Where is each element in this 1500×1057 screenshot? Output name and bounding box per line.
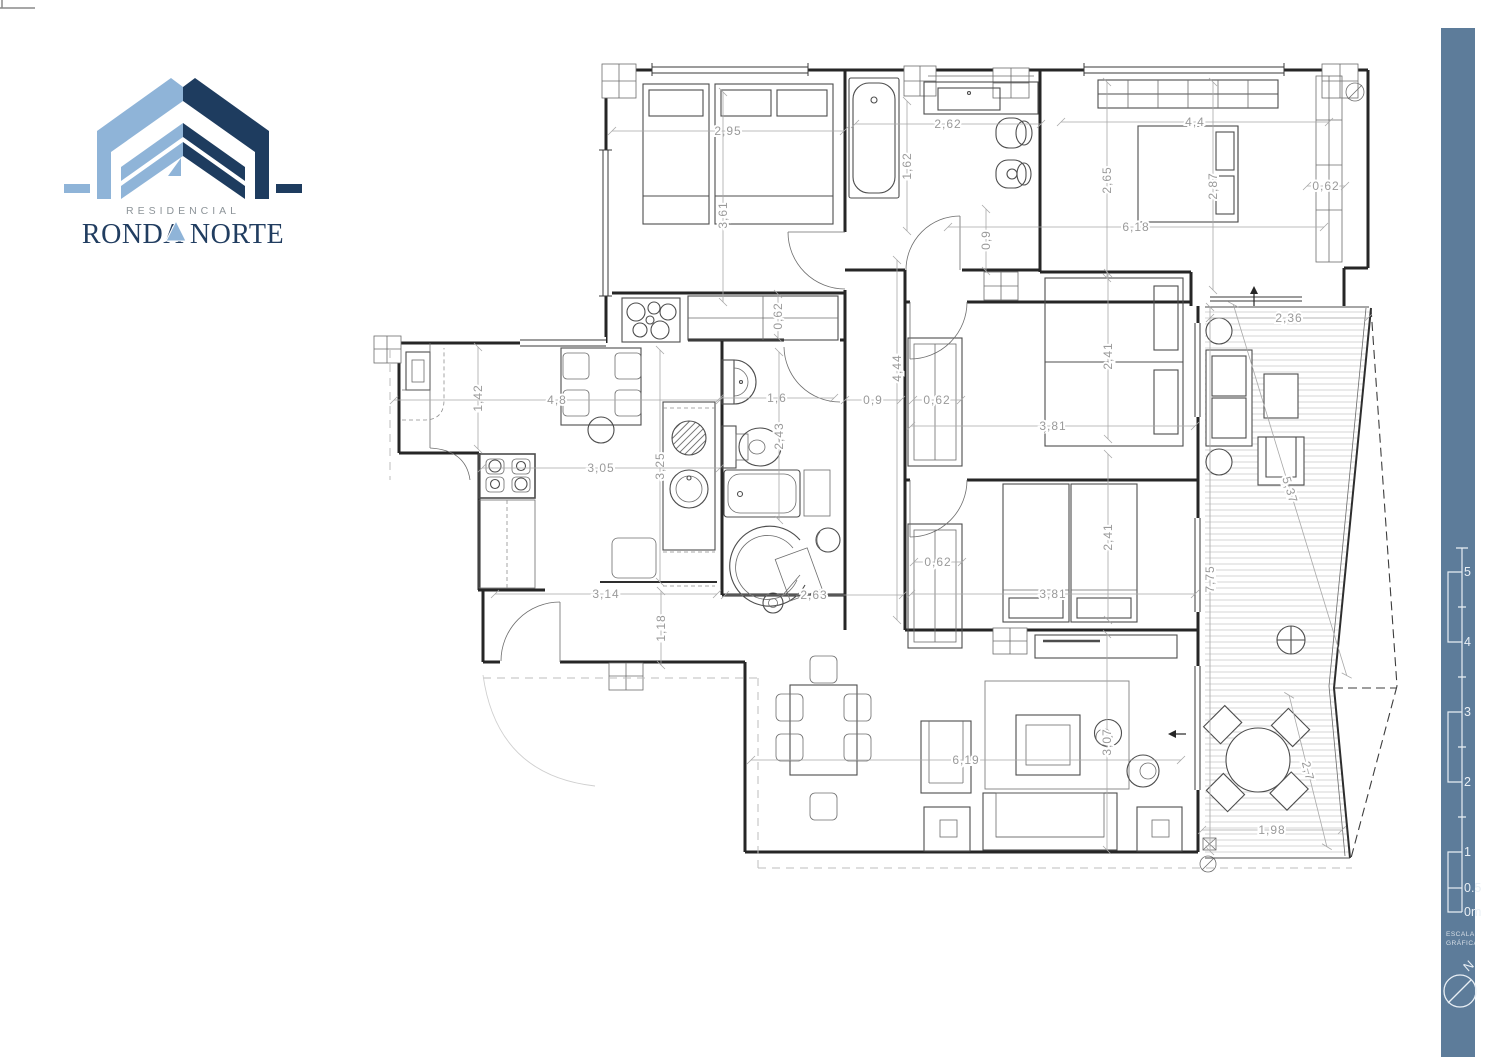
dimension: 0,62 — [910, 555, 966, 569]
logo-building-icon — [64, 78, 302, 199]
svg-text:2,62: 2,62 — [934, 117, 961, 131]
dimension: 0,62 — [771, 290, 785, 342]
dimension: 0,9 — [979, 205, 993, 275]
svg-text:0,62: 0,62 — [1312, 179, 1339, 193]
svg-text:4,8: 4,8 — [547, 393, 567, 407]
svg-text:1,18: 1,18 — [654, 614, 668, 641]
svg-text:2,87: 2,87 — [1206, 172, 1220, 199]
svg-text:2,41: 2,41 — [1101, 523, 1115, 550]
svg-text:6,19: 6,19 — [952, 753, 979, 767]
svg-text:3,81: 3,81 — [1039, 587, 1066, 601]
svg-text:0,62: 0,62 — [771, 302, 785, 329]
dimension: 1,42 — [471, 343, 485, 453]
svg-text:2,43: 2,43 — [772, 422, 786, 449]
svg-text:4,4: 4,4 — [1185, 115, 1205, 129]
svg-text:1,98: 1,98 — [1258, 823, 1285, 837]
dimension: 4,8 — [390, 393, 724, 407]
door-arrow-icon — [1250, 286, 1258, 294]
dimension: 1,62 — [900, 97, 914, 235]
svg-text:3,05: 3,05 — [587, 461, 614, 475]
dimension: 2,41 — [1101, 269, 1115, 443]
svg-text:3,81: 3,81 — [1039, 419, 1066, 433]
dimension: 6,19 — [747, 753, 1185, 767]
svg-text:6,18: 6,18 — [1122, 220, 1149, 234]
svg-text:2,95: 2,95 — [714, 124, 741, 138]
plan-sheet: RESIDENCIAL RONDA NORTE — [0, 0, 1500, 1057]
sidebar-bar — [1441, 28, 1475, 1057]
svg-text:4,44: 4,44 — [890, 354, 904, 381]
dimension: 4,44 — [890, 256, 904, 624]
scale-label: 0m — [1464, 905, 1481, 919]
dimension: 0,9 — [841, 393, 905, 407]
svg-text:0,62: 0,62 — [923, 393, 950, 407]
dimension: 4,4 — [1057, 115, 1333, 129]
brand-logo: RESIDENCIAL RONDA NORTE — [64, 78, 302, 250]
svg-text:7,75: 7,75 — [1203, 565, 1217, 592]
scale-label: 4 — [1464, 635, 1471, 649]
svg-text:0,9: 0,9 — [863, 393, 883, 407]
svg-text:0,62: 0,62 — [924, 555, 951, 569]
floor-plan-canvas: RESIDENCIAL RONDA NORTE — [0, 0, 1500, 1057]
dimension: 3,81 — [907, 419, 1199, 433]
dimension: 3,07 — [1100, 630, 1114, 854]
dimension: 2,87 — [1206, 78, 1220, 294]
sidebar: 543210.50m ESCALA GRÁFICA N — [1441, 28, 1481, 1057]
dimension: 3,81 — [907, 587, 1199, 601]
dimension: 6,18 — [944, 220, 1328, 234]
dimension: 2,65 — [1100, 78, 1114, 282]
svg-text:3,14: 3,14 — [592, 587, 619, 601]
svg-text:1,6: 1,6 — [767, 391, 787, 405]
dimension: 2,43 — [772, 348, 786, 524]
svg-text:2,65: 2,65 — [1100, 166, 1114, 193]
door-arrow-icon — [1168, 730, 1176, 738]
dimension: 1,18 — [654, 587, 668, 669]
dimension: 2,95 — [608, 124, 848, 138]
scale-label: 5 — [1464, 565, 1471, 579]
dimension: 2,36 — [1206, 311, 1372, 325]
dimension: 3,61 — [716, 88, 730, 306]
svg-text:2,7: 2,7 — [1299, 760, 1317, 782]
svg-text:3,61: 3,61 — [716, 201, 730, 228]
scale-caption-line1: ESCALA — [1446, 931, 1475, 938]
svg-text:2,36: 2,36 — [1275, 311, 1302, 325]
svg-text:2,41: 2,41 — [1101, 342, 1115, 369]
page-corner-marks — [0, 0, 35, 8]
svg-text:3,25: 3,25 — [653, 452, 667, 479]
scale-label: 2 — [1464, 775, 1471, 789]
scale-label: 0.5 — [1464, 881, 1481, 895]
brand-line1: RESIDENCIAL — [126, 205, 240, 217]
scale-label: 3 — [1464, 705, 1471, 719]
svg-text:1,62: 1,62 — [900, 152, 914, 179]
dimension: 3,05 — [478, 461, 724, 475]
svg-text:0,9: 0,9 — [979, 230, 993, 250]
scale-caption-line2: GRÁFICA — [1446, 938, 1479, 947]
scale-label: 1 — [1464, 845, 1471, 859]
svg-text:1,42: 1,42 — [471, 384, 485, 411]
dimension: 0,62 — [909, 393, 965, 407]
svg-text:3,07: 3,07 — [1100, 728, 1114, 755]
svg-text:2,63: 2,63 — [800, 588, 827, 602]
